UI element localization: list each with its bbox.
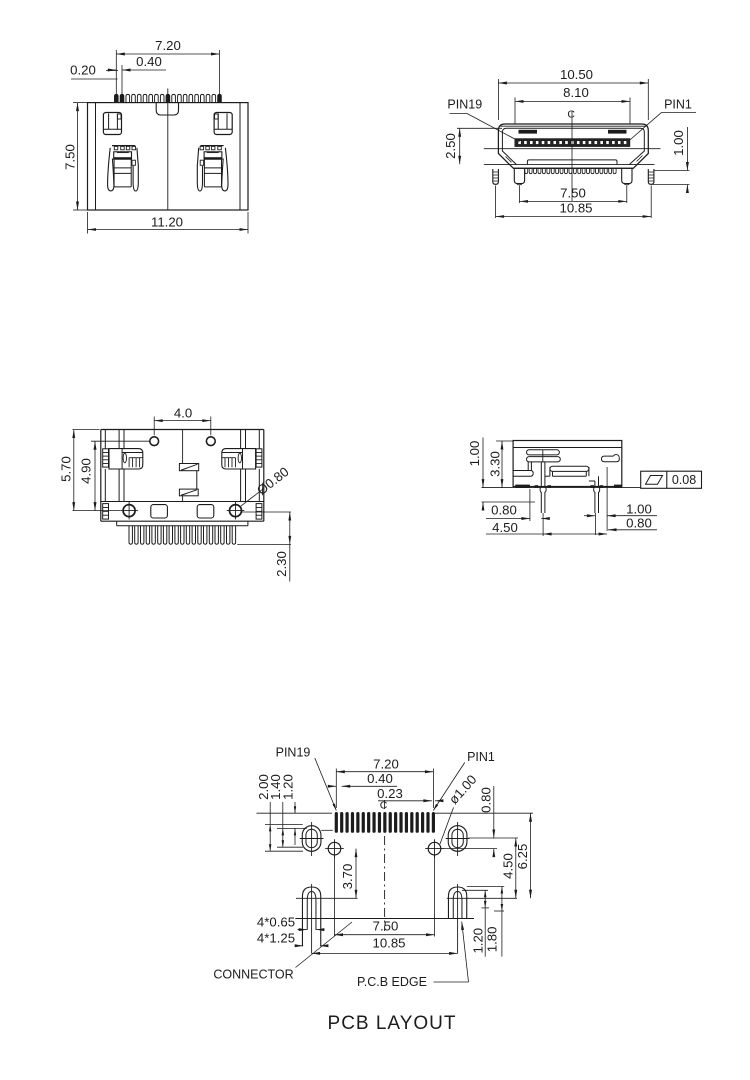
svg-text:8.10: 8.10	[563, 85, 589, 100]
svg-text:C: C	[567, 109, 575, 121]
svg-text:11.20: 11.20	[151, 215, 183, 230]
svg-text:PIN1: PIN1	[467, 750, 495, 764]
svg-text:5.70: 5.70	[58, 456, 73, 482]
svg-text:1.00: 1.00	[626, 502, 652, 517]
svg-text:4*0.65: 4*0.65	[257, 915, 295, 930]
svg-text:4.50: 4.50	[500, 853, 515, 879]
svg-text:7.50: 7.50	[560, 185, 586, 200]
svg-text:0.80: 0.80	[491, 503, 517, 518]
svg-text:1.20: 1.20	[471, 928, 486, 954]
svg-text:C: C	[380, 800, 388, 812]
svg-text:3.70: 3.70	[340, 864, 355, 890]
svg-text:10.50: 10.50	[560, 67, 593, 82]
svg-text:0.40: 0.40	[367, 771, 393, 786]
svg-text:7.50: 7.50	[373, 919, 399, 934]
svg-text:7.20: 7.20	[155, 38, 181, 53]
svg-text:4.90: 4.90	[78, 458, 93, 484]
svg-text:2.50: 2.50	[443, 133, 458, 159]
svg-text:PIN1: PIN1	[664, 98, 692, 112]
svg-text:4.0: 4.0	[174, 406, 192, 421]
svg-text:2.30: 2.30	[274, 551, 289, 577]
svg-text:0.23: 0.23	[377, 786, 403, 801]
svg-text:1.00: 1.00	[671, 130, 686, 156]
svg-text:0.08: 0.08	[672, 473, 696, 487]
svg-text:7.20: 7.20	[373, 757, 399, 772]
svg-text:0.40: 0.40	[136, 54, 162, 69]
svg-text:PCB LAYOUT: PCB LAYOUT	[328, 1013, 457, 1034]
svg-text:PIN19: PIN19	[447, 98, 482, 112]
svg-text:1.20: 1.20	[280, 774, 295, 800]
svg-text:PIN19: PIN19	[276, 746, 311, 760]
svg-text:10.85: 10.85	[559, 201, 592, 216]
svg-text:10.85: 10.85	[372, 936, 405, 951]
svg-text:1.80: 1.80	[485, 927, 500, 953]
svg-text:6.25: 6.25	[515, 844, 530, 870]
svg-text:3.30: 3.30	[487, 451, 502, 477]
svg-text:CONNECTOR: CONNECTOR	[213, 968, 293, 982]
svg-text:1.00: 1.00	[467, 441, 482, 467]
svg-text:0.20: 0.20	[70, 63, 96, 78]
svg-text:7.50: 7.50	[63, 144, 78, 170]
svg-text:4.50: 4.50	[492, 520, 518, 535]
svg-text:0.80: 0.80	[626, 516, 652, 531]
svg-text:0.80: 0.80	[478, 787, 493, 813]
svg-text:4*1.25: 4*1.25	[257, 931, 295, 946]
svg-text:P.C.B EDGE: P.C.B EDGE	[357, 975, 427, 989]
